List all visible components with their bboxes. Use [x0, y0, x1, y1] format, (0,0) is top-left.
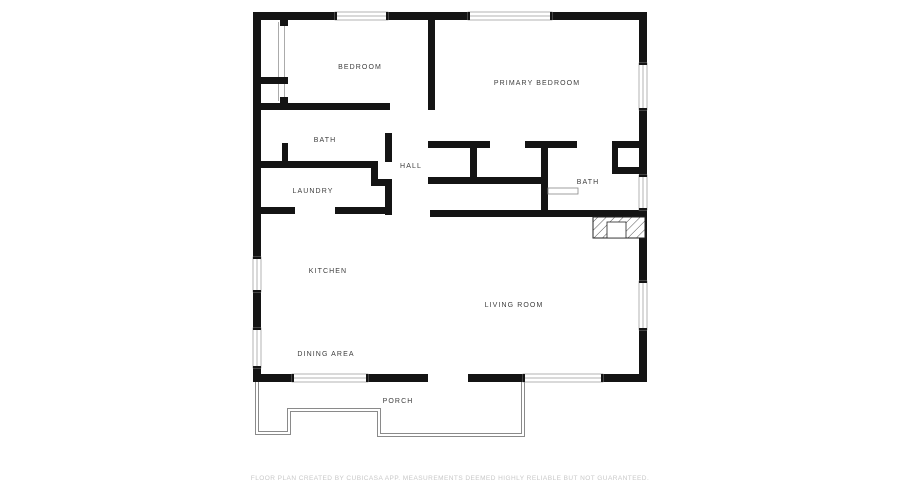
room-label-porch: PORCH [383, 398, 414, 405]
fireplace [593, 217, 645, 238]
exterior-walls [253, 12, 647, 382]
room-label-hall: HALL [400, 163, 422, 170]
room-label-bath-1: BATH [314, 137, 337, 144]
bedroom-closet-doors [279, 22, 285, 101]
footer-disclaimer: FLOOR PLAN CREATED BY CUBICASA APP. MEAS… [0, 475, 900, 482]
window [639, 63, 647, 110]
room-label-bath-2: BATH [577, 179, 600, 186]
window [639, 281, 647, 330]
window [523, 374, 603, 382]
windows [253, 12, 647, 382]
window [335, 12, 388, 20]
window [639, 175, 647, 210]
porch-outline [256, 382, 525, 437]
room-label-laundry: LAUNDRY [292, 188, 333, 195]
room-label-primary-bedroom: PRIMARY BEDROOM [494, 80, 580, 87]
floor-plan-drawing [0, 0, 900, 500]
bath-vanity [548, 188, 578, 194]
floor-plan-canvas: BEDROOM PRIMARY BEDROOM BATH HALL LAUNDR… [0, 0, 900, 500]
window [292, 374, 368, 382]
window [468, 12, 552, 20]
room-label-living-room: LIVING ROOM [485, 302, 544, 309]
interior-walls [253, 13, 647, 217]
window [253, 257, 261, 292]
room-label-kitchen: KITCHEN [309, 268, 347, 275]
room-label-dining-area: DINING AREA [297, 351, 354, 358]
window [253, 328, 261, 368]
room-label-bedroom: BEDROOM [338, 64, 382, 71]
